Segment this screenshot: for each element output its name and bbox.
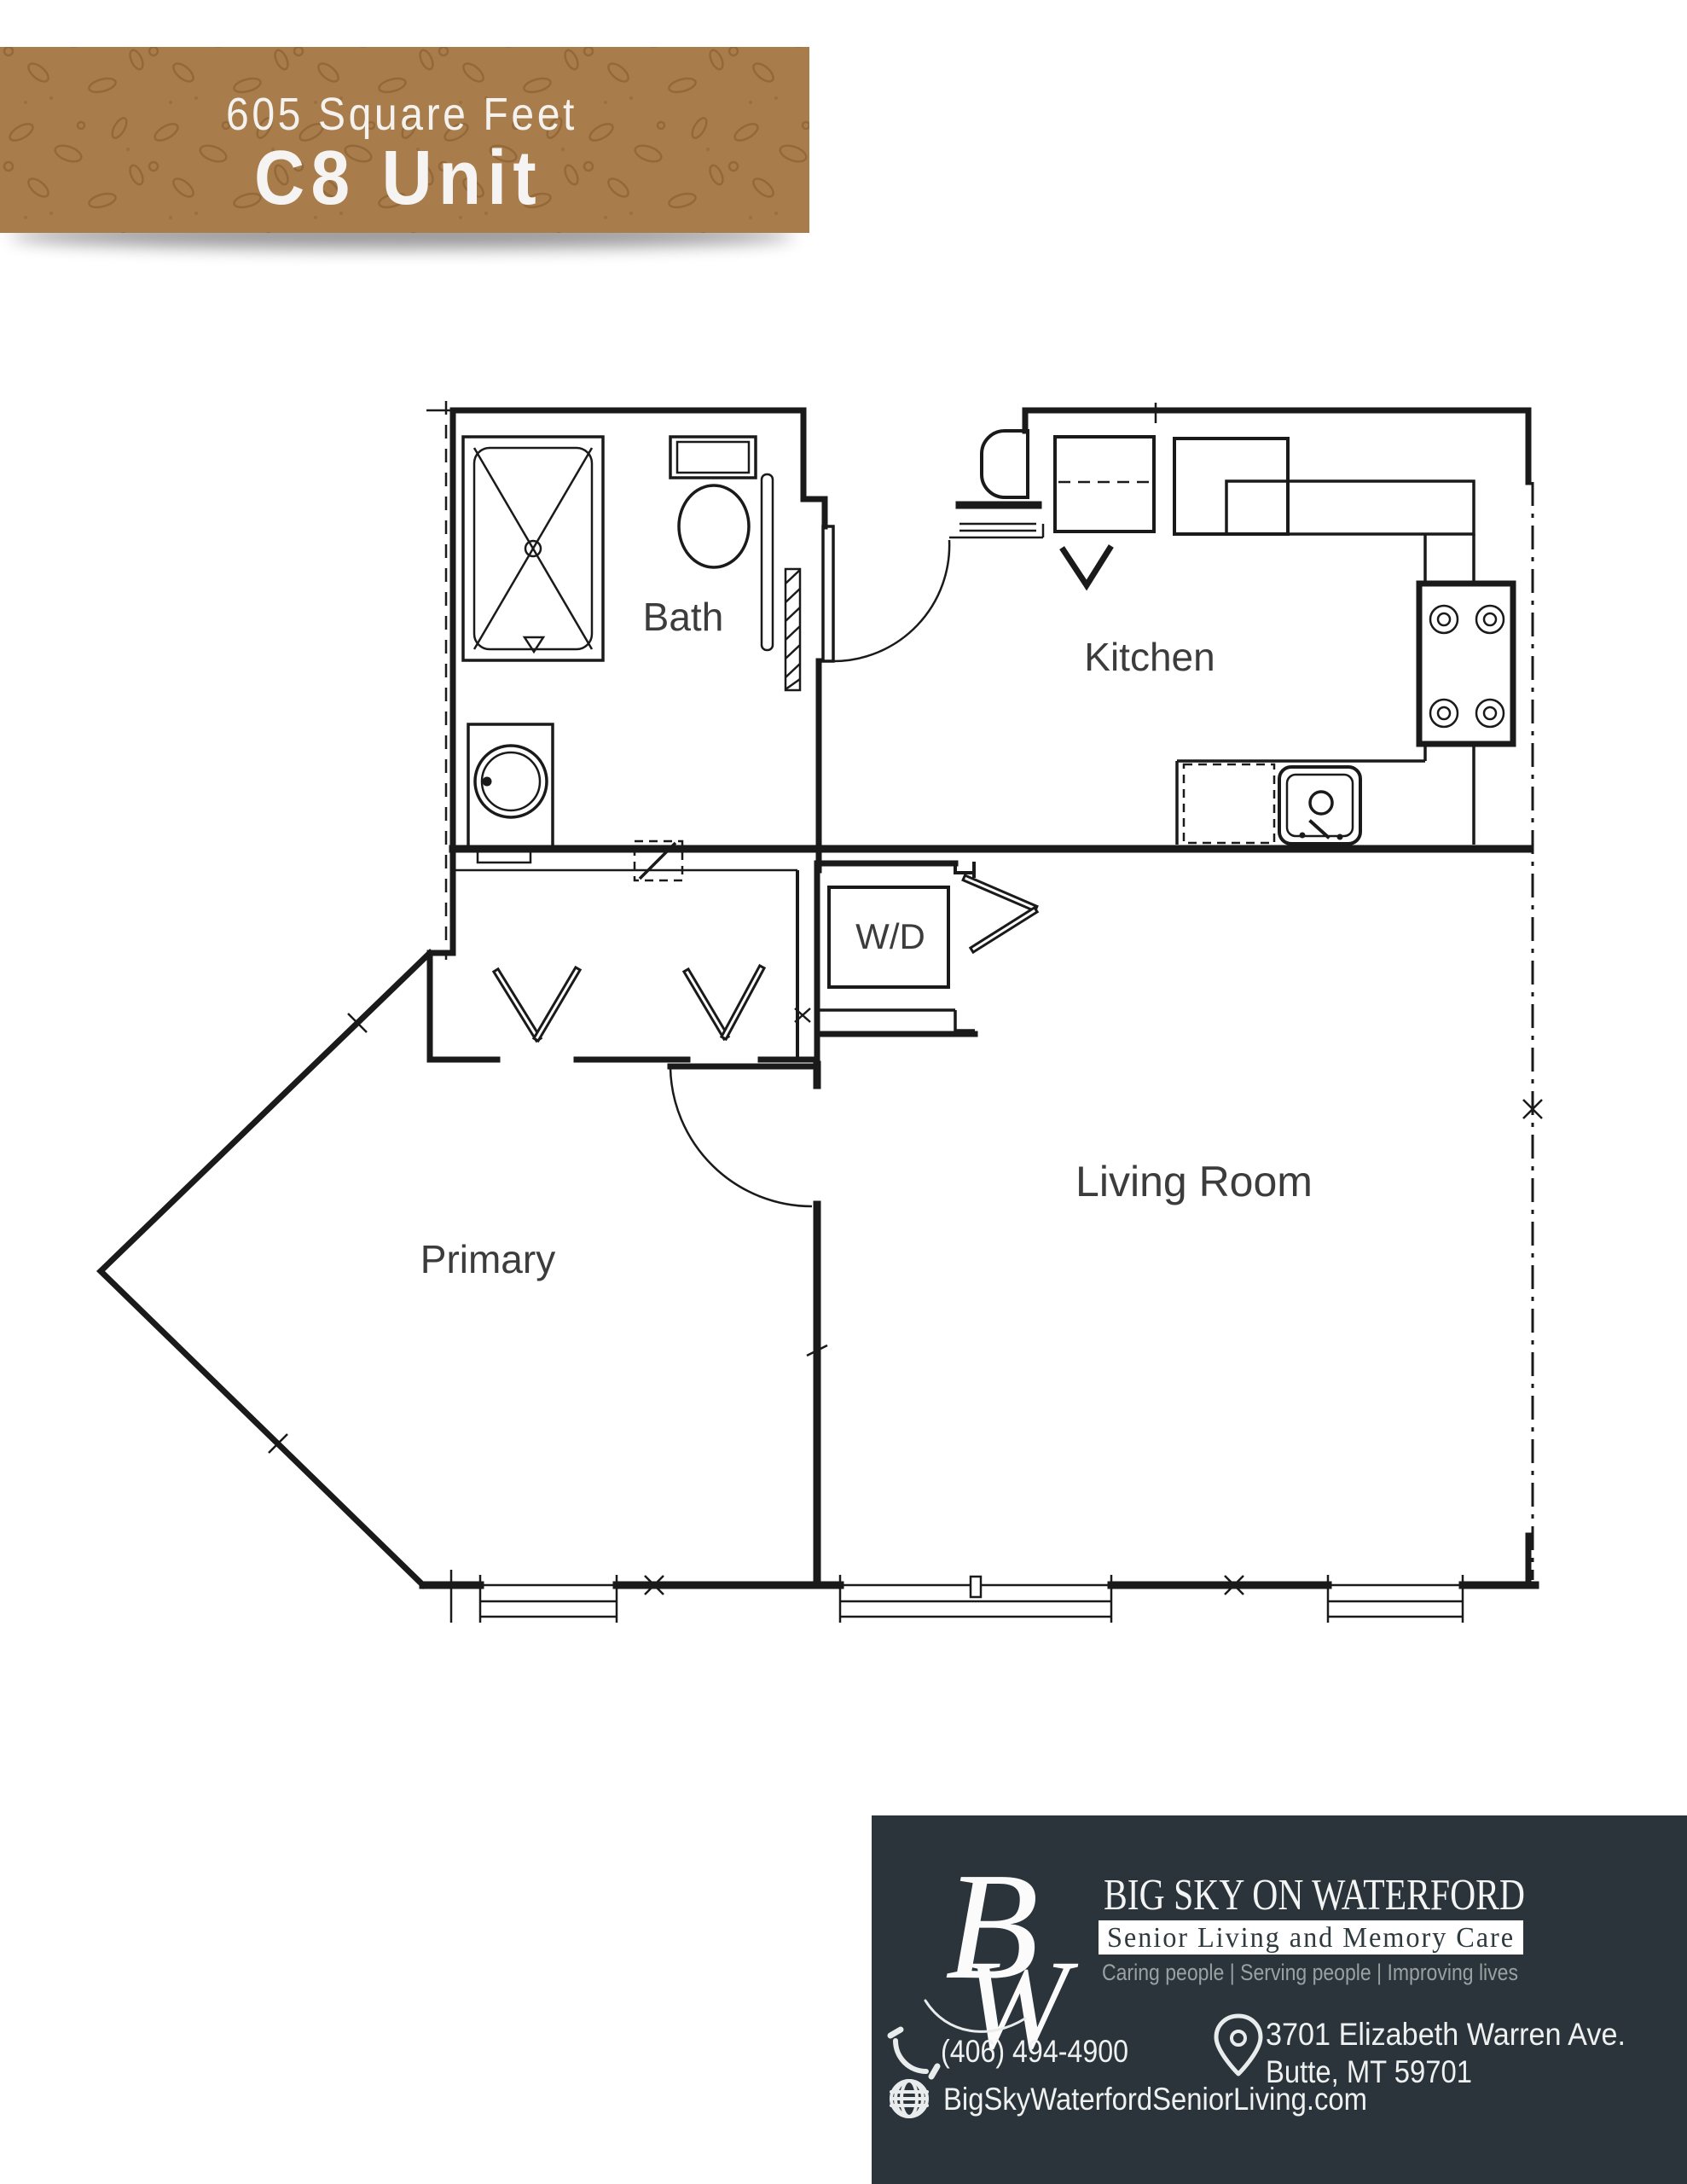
primary-room: Primary	[420, 1068, 812, 1281]
unit-flyer-page: 605 Square Feet C8 Unit	[0, 0, 1687, 2184]
entry-door	[966, 879, 1034, 949]
window	[451, 1570, 1463, 1623]
primary-door-arc	[670, 1068, 812, 1206]
kitchen-label: Kitchen	[1084, 635, 1215, 679]
living-room: Living Room	[1075, 1158, 1313, 1205]
bifold-closet-doors	[497, 969, 761, 1037]
footer-subtitle: Senior Living and Memory Care	[1107, 1922, 1515, 1954]
shower	[463, 437, 603, 660]
footer-brand-name: BIG SKY ON WATERFORD	[1104, 1871, 1525, 1920]
bath-room: Bath	[463, 437, 949, 880]
toilet	[670, 437, 756, 567]
banner-title: C8 Unit	[254, 136, 542, 221]
kitchen-counters	[1174, 439, 1474, 845]
primary-label: Primary	[420, 1237, 555, 1281]
footer-address-line1: 3701 Elizabeth Warren Ave.	[1266, 2017, 1626, 2052]
kitchen-room: Kitchen	[1055, 437, 1513, 845]
entry-area	[949, 431, 1043, 537]
living-room-label: Living Room	[1075, 1158, 1313, 1205]
dishwasher	[1184, 764, 1274, 843]
laundry-closet: W/D	[817, 863, 975, 1085]
footer-tagline: Caring people | Serving people | Improvi…	[1102, 1960, 1518, 1985]
floor-plan: Bath	[101, 401, 1542, 1623]
range-stove	[1419, 584, 1513, 744]
refrigerator	[1055, 437, 1154, 531]
mirror-strip	[762, 474, 773, 650]
vanity-sink	[468, 724, 553, 863]
bath-label: Bath	[643, 595, 724, 639]
pocket-door-panel	[786, 569, 800, 690]
banner-subtitle: 605 Square Feet	[226, 89, 577, 140]
entry-door-leaf	[982, 431, 1028, 497]
wall-tick-marks	[269, 1008, 1542, 1594]
footer-card: B W BIG SKY ON WATERFORD Senior Living a…	[872, 1815, 1687, 2184]
kitchen-opening-mark	[1064, 549, 1110, 585]
footer-website: BigSkyWaterfordSeniorLiving.com	[943, 2082, 1367, 2117]
footer-phone: (406) 494-4900	[941, 2034, 1128, 2069]
unit-banner: 605 Square Feet C8 Unit	[0, 47, 809, 248]
kitchen-sink	[1279, 767, 1360, 844]
laundry-label: W/D	[855, 916, 925, 956]
bath-door	[823, 526, 949, 661]
